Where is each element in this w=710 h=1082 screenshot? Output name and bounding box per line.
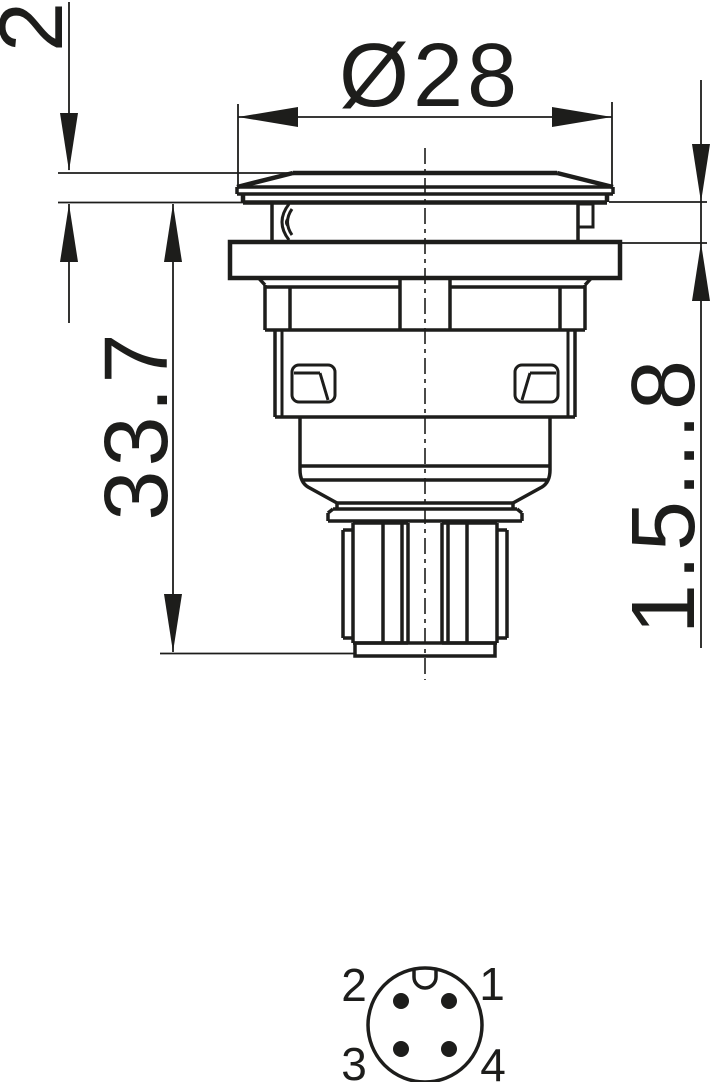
diameter-arrow-left	[238, 107, 298, 127]
cap-neck	[272, 203, 593, 243]
pushbutton-dimension-drawing: Ø28 2 33.7 1.5...8 2 1 3 4	[0, 0, 710, 1082]
spring-clip-icon	[282, 204, 292, 240]
keyway-notch	[414, 969, 436, 988]
connector-pinout-view: 2 1 3 4	[341, 958, 506, 1082]
latch-right	[515, 365, 558, 402]
diameter-arrow-right	[552, 107, 612, 127]
pin-label-2: 2	[341, 959, 367, 1011]
pin-label-3: 3	[341, 1038, 367, 1082]
latch-left-frame	[292, 365, 335, 402]
protrusion-label: 2	[0, 0, 82, 52]
depth-arrow-up	[164, 204, 182, 262]
knurl-left-half	[343, 523, 408, 643]
dimension-panel-thickness: 1.5...8	[609, 80, 710, 648]
protrusion-arrow-up	[60, 204, 78, 262]
panel-thickness-label: 1.5...8	[614, 356, 710, 634]
dimension-overall-depth: 33.7	[87, 204, 354, 654]
latch-right-detail	[522, 373, 556, 400]
technical-drawing-page: Ø28 2 33.7 1.5...8 2 1 3 4	[0, 0, 710, 1082]
pushbutton-side-view	[230, 148, 620, 680]
pin-label-1: 1	[479, 958, 505, 1010]
pin-label-4: 4	[480, 1039, 506, 1082]
panel-arrow-down	[692, 144, 710, 202]
knurl-right-half	[442, 523, 507, 643]
diameter-label: Ø28	[339, 26, 521, 126]
button-cap	[237, 173, 613, 203]
connector-face-circle	[368, 968, 482, 1082]
depth-arrow-down	[164, 594, 182, 652]
dimension-cap-protrusion: 2	[0, 0, 293, 323]
depth-label: 33.7	[87, 329, 187, 520]
anti-rotation-tab	[578, 204, 593, 227]
latch-left	[292, 365, 335, 402]
pin-3-contact	[393, 1041, 409, 1057]
latch-right-frame	[515, 365, 558, 402]
protrusion-arrow-down	[60, 113, 78, 171]
pin-2-contact	[393, 993, 409, 1009]
panel-arrow-up	[692, 243, 710, 301]
pin-4-contact	[441, 1041, 457, 1057]
latch-left-detail	[294, 373, 328, 400]
pin-1-contact	[441, 993, 457, 1009]
